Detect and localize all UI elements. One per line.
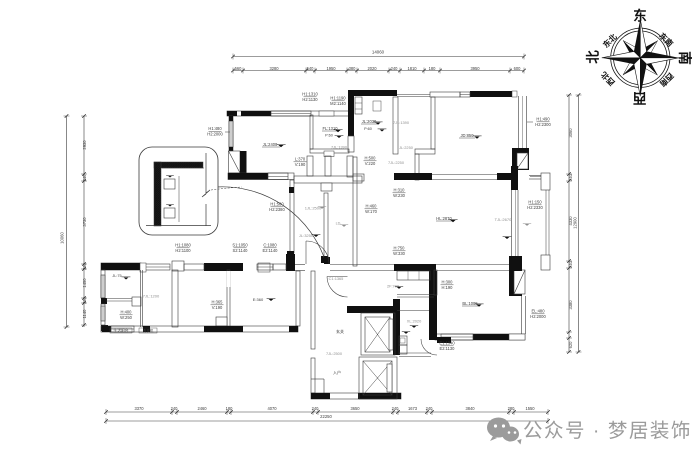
svg-text:M2:1140: M2:1140 [330, 101, 346, 106]
svg-text:1550: 1550 [525, 406, 535, 411]
svg-text:3060: 3060 [568, 128, 573, 138]
svg-text:H1:1190: H1:1190 [330, 96, 346, 101]
svg-text:W:230: W:230 [393, 193, 405, 198]
svg-text:P:60: P:60 [364, 127, 372, 131]
svg-text:玄关: 玄关 [336, 328, 344, 334]
svg-text:P:60: P:60 [325, 134, 333, 138]
svg-text:380: 380 [349, 66, 357, 71]
svg-text:560: 560 [235, 66, 243, 71]
svg-text:TJL:2670: TJL:2670 [495, 217, 512, 222]
svg-text:7JL:2500: 7JL:2500 [326, 351, 343, 356]
svg-text:L:370: L:370 [295, 157, 306, 162]
svg-text:3650: 3650 [350, 406, 360, 411]
svg-text:W:170: W:170 [365, 209, 377, 214]
svg-text:H1:480: H1:480 [208, 126, 222, 131]
svg-text:H:750: H:750 [394, 246, 406, 251]
svg-text:10060: 10060 [60, 232, 65, 244]
svg-text:S1:1050: S1:1050 [232, 243, 248, 248]
svg-text:1140: 1140 [82, 309, 87, 319]
svg-text:生活阳台: 生活阳台 [113, 328, 128, 333]
svg-text:1450: 1450 [82, 278, 87, 288]
svg-text:2460: 2460 [197, 406, 207, 411]
svg-text:H2:2380: H2:2380 [269, 207, 285, 212]
svg-text:2930: 2930 [82, 140, 87, 150]
svg-text:西: 西 [633, 91, 647, 106]
svg-text:H1:490: H1:490 [536, 117, 550, 122]
svg-text:240: 240 [312, 406, 320, 411]
svg-text:V:190: V:190 [295, 162, 306, 167]
svg-text:2020: 2020 [367, 66, 377, 71]
svg-text:H2:2000: H2:2000 [530, 314, 546, 319]
svg-text:7JL:2250: 7JL:2250 [388, 160, 405, 165]
svg-text:240: 240 [391, 66, 399, 71]
svg-text:公众号 · 梦居装饰: 公众号 · 梦居装饰 [523, 420, 692, 442]
svg-text:V:190: V:190 [212, 305, 223, 310]
svg-text:C:1080: C:1080 [263, 243, 277, 248]
svg-text:E:360: E:360 [253, 297, 264, 302]
svg-text:JL:75: JL:75 [112, 274, 121, 278]
svg-text:H2:1100: H2:1100 [175, 248, 191, 253]
svg-text:洗衣机: 洗衣机 [143, 328, 154, 333]
svg-text:1673: 1673 [408, 406, 418, 411]
svg-text:240: 240 [568, 260, 573, 268]
svg-text:7JL:1390: 7JL:1390 [331, 145, 348, 150]
svg-text:JL:2400: JL:2400 [263, 142, 278, 147]
svg-text:180: 180 [226, 406, 234, 411]
svg-text:H2:1130: H2:1130 [302, 97, 318, 102]
svg-text:H:460: H:460 [366, 204, 378, 209]
svg-text:240: 240 [82, 174, 87, 182]
svg-text:东: 东 [633, 8, 647, 24]
svg-text:H1:1310: H1:1310 [302, 92, 318, 97]
svg-text:H2:2000: H2:2000 [207, 132, 223, 137]
svg-text:H:300: H:300 [442, 280, 454, 285]
svg-text:12900: 12900 [573, 217, 578, 229]
svg-text:3280: 3280 [269, 66, 279, 71]
svg-text:W:330: W:330 [393, 251, 405, 256]
svg-text:H1:580: H1:580 [270, 202, 284, 207]
svg-text:180: 180 [429, 66, 437, 71]
svg-text:H:310: H:310 [394, 188, 406, 193]
svg-text:HL:2870: HL:2870 [436, 216, 452, 221]
svg-text:H2:2300: H2:2300 [535, 122, 551, 127]
svg-text:3840: 3840 [465, 406, 475, 411]
svg-text:C1:1365: C1:1365 [329, 276, 344, 281]
svg-text:4070: 4070 [267, 406, 277, 411]
svg-text:H1:150: H1:150 [528, 200, 542, 205]
svg-text:7JL:1390: 7JL:1390 [393, 120, 410, 125]
svg-text:240: 240 [426, 406, 434, 411]
svg-text:H2:2330: H2:2330 [527, 205, 543, 210]
svg-text:LD: LD [336, 222, 341, 226]
svg-text:E1:1340: E1:1340 [439, 341, 455, 346]
svg-text:JL:2250: JL:2250 [399, 145, 414, 150]
svg-text:JD:850: JD:850 [461, 133, 475, 138]
svg-text:BL:1005: BL:1005 [462, 301, 478, 306]
svg-text:E2:1130: E2:1130 [440, 346, 456, 351]
svg-text:22250: 22250 [320, 414, 332, 419]
svg-text:E2:1140: E2:1140 [263, 248, 279, 253]
svg-text:3730: 3730 [82, 217, 87, 227]
svg-text:1950: 1950 [326, 66, 336, 71]
svg-text:240: 240 [171, 406, 179, 411]
svg-text:3370: 3370 [134, 406, 144, 411]
svg-text:7JL:1200: 7JL:1200 [143, 294, 160, 299]
svg-text:JL:2030: JL:2030 [362, 119, 377, 124]
svg-text:H1:1080: H1:1080 [175, 243, 191, 248]
svg-text:620: 620 [568, 341, 573, 349]
svg-text:W:250: W:250 [120, 315, 132, 320]
svg-text:V:220: V:220 [365, 161, 376, 166]
svg-text:540: 540 [307, 66, 315, 71]
svg-text:H:500: H:500 [365, 156, 377, 161]
svg-text:S2:1140: S2:1140 [233, 248, 249, 253]
svg-text:XL:2020: XL:2020 [407, 319, 422, 324]
svg-text:240: 240 [392, 406, 400, 411]
svg-text:240: 240 [82, 262, 87, 270]
svg-text:600: 600 [514, 66, 522, 71]
svg-text:北: 北 [586, 50, 601, 64]
svg-text:3950: 3950 [470, 66, 480, 71]
svg-text:H:190: H:190 [442, 285, 454, 290]
svg-text:JL:3250: JL:3250 [299, 233, 314, 238]
svg-text:240: 240 [82, 296, 87, 304]
svg-text:H:365: H:365 [212, 300, 224, 305]
svg-text:入户: 入户 [333, 369, 341, 375]
svg-text:EL:480: EL:480 [532, 309, 546, 314]
svg-text:3380: 3380 [568, 300, 573, 310]
svg-text:1810: 1810 [407, 66, 417, 71]
svg-text:南: 南 [677, 51, 693, 65]
svg-text:280: 280 [508, 406, 516, 411]
svg-text:14060: 14060 [372, 50, 385, 55]
svg-text:H:400: H:400 [121, 310, 133, 315]
svg-text:240: 240 [568, 173, 573, 181]
